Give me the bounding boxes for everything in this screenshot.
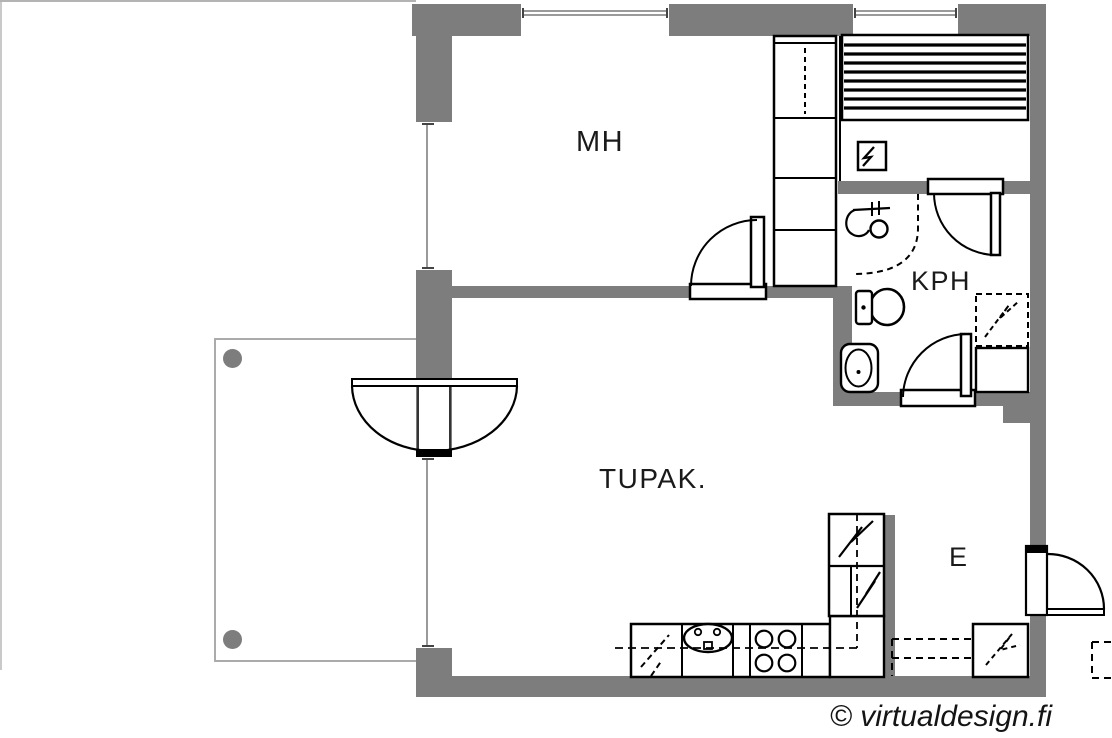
electrical-panel-icon bbox=[858, 142, 886, 170]
washing-machine-reservation bbox=[976, 294, 1028, 346]
shower-mixer-icon bbox=[846, 201, 890, 238]
door-mh bbox=[690, 217, 766, 299]
room-label-mh: MH bbox=[576, 126, 624, 159]
door-balcony bbox=[352, 379, 517, 457]
watermark: © virtualdesign.fi bbox=[790, 700, 1052, 734]
shelf-unit bbox=[842, 35, 1028, 120]
plan-linework bbox=[0, 0, 1112, 738]
door-kph-top bbox=[928, 179, 1003, 255]
room-label-kph: KPH bbox=[911, 266, 971, 297]
entry-cabinet-reservation bbox=[973, 624, 1028, 677]
toilet-icon bbox=[856, 289, 904, 325]
floor-plan: MH KPH TUPAK. E © virtualdesign.fi bbox=[0, 0, 1112, 738]
wardrobe-cabinet bbox=[774, 36, 836, 286]
bathroom-cabinet bbox=[976, 348, 1028, 392]
worktop-reservation bbox=[892, 639, 973, 676]
door-kph-bottom bbox=[901, 334, 975, 406]
door-exit bbox=[1026, 546, 1104, 615]
outside-reservation bbox=[1092, 642, 1112, 678]
bathroom-sink-icon bbox=[841, 344, 878, 392]
room-label-tupak: TUPAK. bbox=[599, 463, 707, 495]
room-label-e: E bbox=[949, 542, 969, 573]
